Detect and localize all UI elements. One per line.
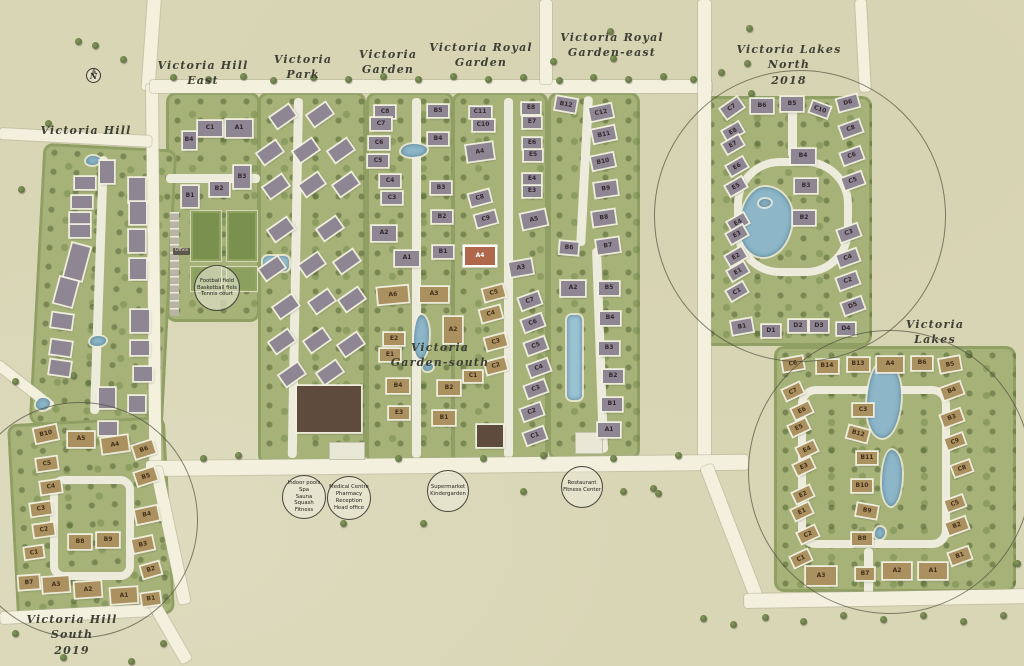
building: [131, 341, 149, 355]
pool-circle-line: Indoor pools: [288, 480, 321, 487]
tree-icon: [730, 621, 737, 628]
lake: [401, 144, 427, 157]
building-b4: B4: [428, 133, 448, 145]
building: [129, 178, 145, 202]
tree-icon: [746, 25, 753, 32]
tree-icon: [655, 490, 662, 497]
building: [134, 367, 152, 381]
tree-icon: [18, 186, 25, 193]
tree-icon: [660, 73, 667, 80]
building: [75, 177, 95, 189]
area-title-victoria-garden-south: Victoria Garden-south: [391, 340, 490, 371]
victoria-hill-east-parcel-parking: [170, 212, 179, 316]
tree-icon: [620, 488, 627, 495]
area-title-victoria-lakes: Victoria Lakes: [891, 317, 980, 348]
building: [129, 230, 145, 252]
sports-circle: Football fieldBasketball fielsTennis cou…: [194, 265, 240, 311]
tree-icon: [450, 73, 457, 80]
tree-icon: [160, 640, 167, 647]
building-c7: C7: [371, 118, 391, 130]
tree-icon: [12, 378, 19, 385]
building-b4: B4: [387, 379, 409, 393]
restaurant-circle-line: Fitness Center: [563, 487, 601, 494]
tree-icon: [550, 58, 557, 65]
building-c10: C10: [473, 120, 494, 131]
sports-field: [190, 210, 222, 262]
building-e6: E6: [523, 138, 541, 149]
supermarket-circle-line: Supermarket: [431, 484, 465, 491]
sports-field: [226, 210, 258, 262]
compass-north-label: N: [90, 71, 97, 81]
building-c8: C8: [375, 106, 395, 118]
sports-circle-line: Football field: [200, 278, 234, 285]
supermarket-circle-line: Kindergarden: [430, 491, 466, 498]
tree-icon: [485, 76, 492, 83]
tree-icon: [675, 452, 682, 459]
sports-circle-line: Tennis court: [201, 291, 233, 298]
tree-icon: [92, 42, 99, 49]
tree-icon: [520, 488, 527, 495]
swimming-pool: [567, 315, 582, 400]
area-title-victoria-lakes-north: Victoria Lakes North 2018: [736, 42, 841, 88]
tree-icon: [762, 614, 769, 621]
building-a2: A2: [561, 281, 585, 296]
building-b1: B1: [602, 398, 622, 411]
building-b1: B1: [433, 411, 455, 425]
victoria-royal-garden-parcel-street: [504, 98, 513, 458]
tree-icon: [75, 38, 82, 45]
tree-icon: [920, 612, 927, 619]
building: [297, 386, 361, 432]
tree-icon: [800, 618, 807, 625]
medical-circle-line: Medical Centre: [329, 484, 369, 491]
building-e7: E7: [523, 117, 541, 128]
tree-icon: [345, 76, 352, 83]
tree-icon: [520, 74, 527, 81]
building-b1: B1: [182, 186, 198, 207]
tree-icon: [700, 615, 707, 622]
building-b2: B2: [432, 211, 452, 223]
pool-circle-line: Spa: [299, 487, 309, 494]
building-b2: B2: [438, 381, 460, 395]
building-c6: C6: [369, 137, 389, 149]
tree-icon: [70, 372, 77, 379]
building: [49, 360, 71, 377]
building-a3: A3: [420, 287, 448, 302]
victoria-park-parcel-paved-area: [330, 443, 364, 459]
area-title-victoria-park: Victoria Park: [274, 52, 332, 83]
area-title-victoria-garden: Victoria Garden: [359, 47, 417, 78]
road-segment: [855, 0, 871, 92]
tree-icon: [556, 77, 563, 84]
building: [130, 259, 146, 279]
building-b2: B2: [603, 370, 623, 383]
building: [70, 213, 90, 225]
building-a4: A4: [465, 247, 495, 265]
pool-circle-line: Fitness: [295, 507, 313, 514]
area-title-victoria-royal-garden: Victoria Royal Garden: [429, 40, 533, 71]
building-b1: B1: [433, 246, 453, 258]
building-c4: C4: [380, 175, 400, 187]
tree-icon: [128, 658, 135, 665]
tree-icon: [1014, 560, 1021, 567]
area-title-victoria-royal-garden-east: Victoria Royal Garden-east: [560, 30, 664, 61]
tree-icon: [480, 455, 487, 462]
building-a1: A1: [598, 423, 620, 437]
building-b3: B3: [431, 182, 451, 194]
building-b3: B3: [599, 342, 619, 355]
tree-icon: [120, 56, 127, 63]
building-b4: B4: [600, 312, 620, 325]
tree-icon: [235, 452, 242, 459]
tree-icon: [12, 630, 19, 637]
tree-icon: [690, 76, 697, 83]
building-a2: A2: [372, 226, 396, 241]
building-b3: B3: [234, 166, 250, 188]
tree-icon: [540, 452, 547, 459]
building: [130, 202, 146, 224]
building: [131, 310, 149, 332]
lakes-boundary: [748, 330, 1024, 614]
building-b2: B2: [210, 182, 229, 196]
pool-circle: Indoor poolsSpaSaunaSquashFitness: [282, 475, 326, 519]
building-b5: B5: [599, 282, 619, 295]
building: [72, 196, 92, 208]
building: [129, 396, 145, 412]
medical-circle-line: Head office: [334, 505, 364, 512]
area-title-victoria-hill-south: Victoria Hill South 2019: [26, 612, 117, 658]
building-c1: C1: [464, 371, 482, 382]
tree-icon: [340, 520, 347, 527]
building: [100, 161, 114, 183]
area-title-victoria-hill-east: Victoria Hill East: [157, 58, 248, 89]
building: [70, 225, 90, 237]
building-c5: C5: [368, 155, 388, 167]
building-c3: C3: [382, 192, 402, 204]
building: [477, 425, 503, 447]
tree-icon: [1000, 612, 1007, 619]
tree-icon: [840, 612, 847, 619]
building-e4: E4: [523, 174, 541, 185]
building-b12: B12: [555, 96, 577, 112]
building-c11: C11: [470, 107, 491, 118]
building-e8: E8: [522, 103, 540, 114]
building-c1: C1: [198, 121, 222, 136]
building-e3: E3: [389, 407, 409, 419]
restaurant-circle: RestaurantFitness Center: [561, 466, 603, 508]
restaurant-circle-line: Restaurant: [568, 480, 597, 487]
tree-icon: [200, 455, 207, 462]
tree-icon: [395, 455, 402, 462]
building-a6: A6: [377, 286, 408, 305]
supermarket-circle: SupermarketKindergarden: [427, 470, 469, 512]
building: [51, 313, 73, 330]
tree-icon: [880, 616, 887, 623]
pool-circle-line: Sauna: [296, 494, 313, 501]
medical-circle: Medical CentrePharmacyReceptionHead offi…: [327, 476, 371, 520]
medical-circle-line: Pharmacy: [336, 491, 362, 498]
medical-circle-line: Reception: [336, 498, 362, 505]
tree-icon: [625, 76, 632, 83]
area-title-victoria-hill: Victoria Hill: [40, 123, 131, 138]
building-e3: E3: [523, 186, 541, 197]
tree-icon: [718, 69, 725, 76]
office-label: Office: [173, 248, 190, 255]
compass-circle: N: [86, 68, 101, 83]
tree-icon: [590, 74, 597, 81]
building: [50, 340, 72, 357]
building-b4: B4: [183, 132, 196, 149]
victoria-master-plan-map: N C1A1B4B1B2B3C8C7C6C5C4C3A2A1B5B4B3B2B1…: [0, 0, 1024, 666]
road-segment: [540, 0, 552, 84]
building-a1: A1: [395, 251, 419, 266]
sports-circle-line: Basketball fiels: [197, 285, 237, 292]
lake: [86, 156, 100, 165]
tree-icon: [960, 618, 967, 625]
building-a1: A1: [226, 120, 252, 137]
tree-icon: [610, 455, 617, 462]
pool-circle-line: Squash: [294, 500, 313, 507]
building-b5: B5: [428, 105, 448, 117]
building-b6: B6: [560, 241, 579, 255]
tree-icon: [420, 520, 427, 527]
building-e5: E5: [524, 150, 542, 161]
